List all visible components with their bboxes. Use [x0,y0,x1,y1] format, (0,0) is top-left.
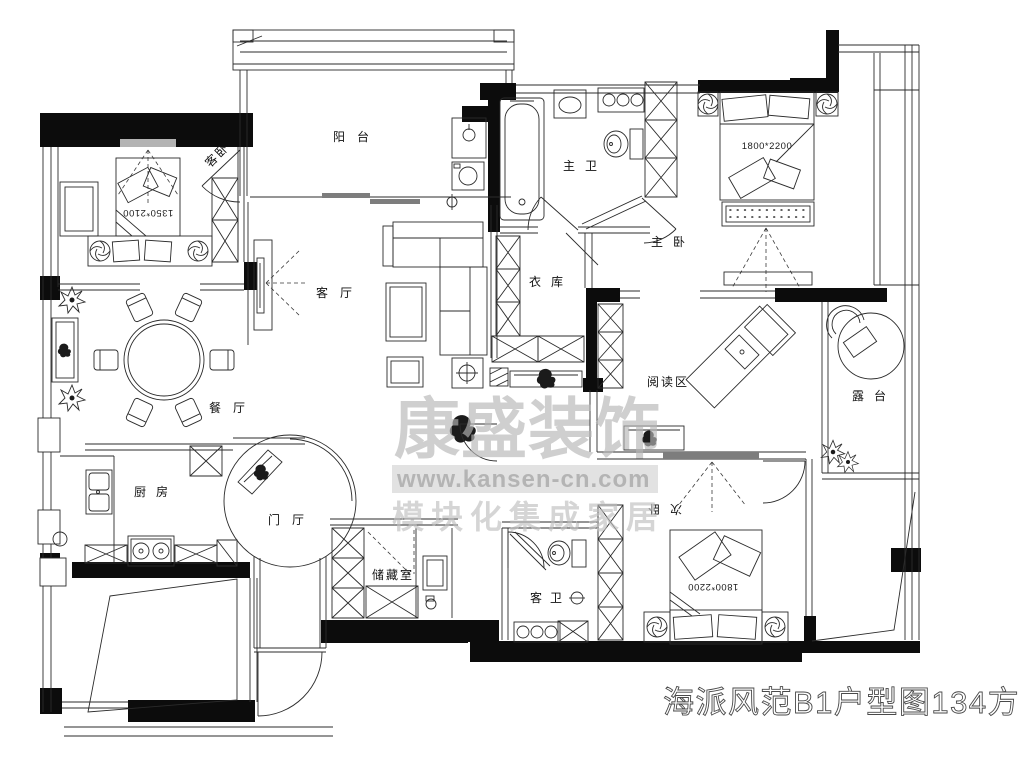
balcony-sink [452,118,486,158]
watermark-url: www.kansen-cn.com [396,466,651,493]
storage-wc [423,528,452,618]
room-label-kitchen: 厨房 [134,484,178,499]
sideboard [52,318,78,382]
guest-bed-size: 1350*2100 [123,207,173,218]
guest-toilet [548,540,586,567]
stove [128,536,174,566]
room-label-entry-hall: 门厅 [268,512,316,527]
room-label-reading-area: 阅读区 [647,375,689,389]
room-label-master-bath: 主卫 [563,159,607,173]
terrace-table [838,313,904,379]
kitchen-sink [86,470,112,514]
second-bedroom-door [763,461,805,503]
nightstand-right [816,92,838,116]
second-bed-size: 1800*2200 [688,581,738,592]
room-label-living-room: 客厅 [316,285,364,300]
room-label-dining-room: 餐厅 [209,400,257,415]
plan-title: 海派风范B1户型图134方 [663,685,1020,720]
watermark-tagline: 模块化集成家居 [392,499,665,535]
kitchen [53,438,305,566]
wash-basin [554,90,586,118]
nightstand-left [698,92,718,116]
shoe-cabinet [238,450,282,494]
entry-door [258,652,322,716]
reading-desk [686,305,795,408]
floor-plan-page: 客卧 阳台 主卫 主卧 衣库 客厅 餐厅 厨房 门厅 储藏室 客卫 次卧 阅读区… [0,0,1029,762]
floor-plan-drawing: 客卧 阳台 主卫 主卧 衣库 客厅 餐厅 厨房 门厅 储藏室 客卫 次卧 阅读区… [0,0,1029,762]
dining-plant-top [59,287,85,313]
master-toilet [604,129,643,159]
closet-door [566,233,598,265]
room-label-terrace: 露台 [852,388,896,403]
room-label-closet: 衣库 [529,274,573,289]
walls-layer [40,30,921,722]
guest-dresser [60,182,98,236]
sofa [383,222,487,355]
console-table [510,369,582,389]
closet [492,233,598,362]
washing-machine [452,162,484,190]
tv-cabinet [254,240,272,330]
guest-bath [502,522,597,642]
dining-plant-bottom [59,385,85,411]
room-label-balcony: 阳台 [333,129,381,144]
floor-lamp [452,358,483,388]
watermark-brand: 康盛装饰 [394,392,662,466]
side-stool [387,357,423,387]
master-bedroom [620,82,838,298]
bath-counter [598,88,644,112]
utility-room [88,578,257,712]
coffee-table [386,283,426,341]
master-bath-door [528,197,578,230]
dining-room [52,287,234,428]
second-nightstand-left [644,612,670,642]
room-label-master-bedroom: 主卧 [651,235,695,249]
dining-table [124,320,204,400]
room-label-storage-room: 储藏室 [372,567,414,582]
room-label-guest-bath: 客卫 [530,590,570,605]
master-bed-size: 1800*2200 [742,141,792,152]
watermark: 康盛装饰 www.kansen-cn.com 模块化集成家居 [392,392,665,535]
second-nightstand-right [762,612,788,642]
bedside-rug [722,202,814,226]
guest-wardrobe [212,178,238,262]
bath-counter-sinks [514,622,560,642]
